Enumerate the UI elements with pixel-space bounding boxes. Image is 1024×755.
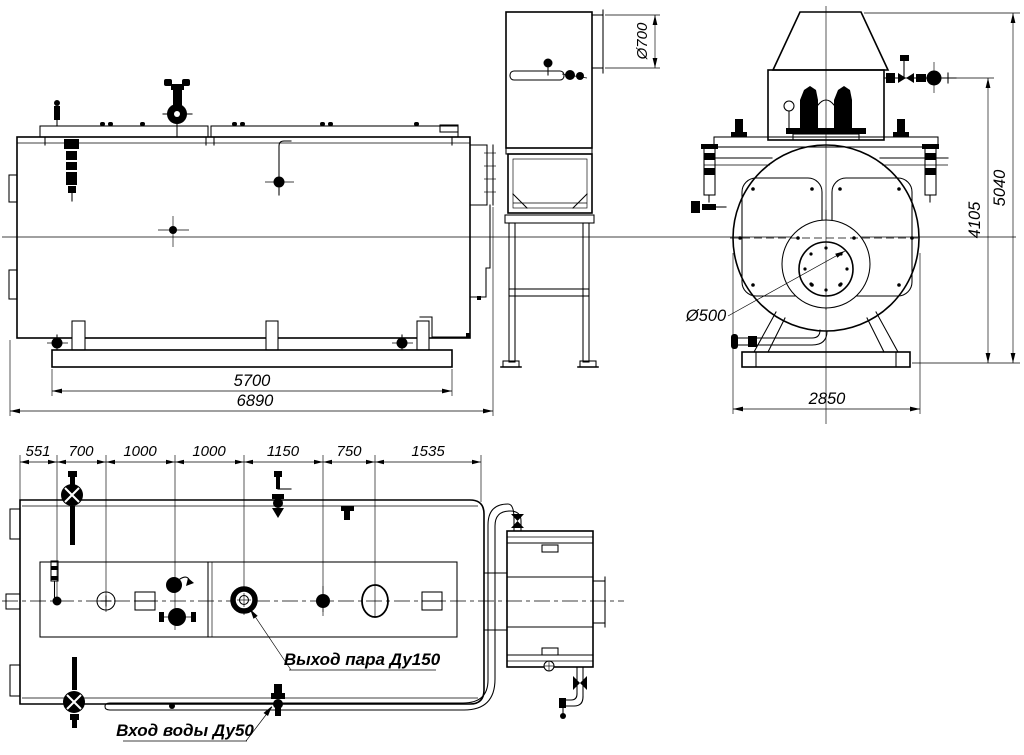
dim-chain-1000b: 1000 <box>192 443 226 460</box>
dim-chain-1000a: 1000 <box>123 443 157 460</box>
economizer-plan <box>507 531 605 719</box>
blowdown-pipe <box>731 330 827 349</box>
hood <box>773 12 888 70</box>
boiler-plan-view: 551 700 1000 1000 1150 750 1535 Выход па… <box>6 443 605 741</box>
safety-valve-group <box>784 86 866 140</box>
dimension-outlet-diameter: Ø700 <box>605 15 660 68</box>
dim-chain-1535: 1535 <box>411 443 445 460</box>
plan-top-valves <box>61 471 354 545</box>
steam-outlet-nozzle <box>233 589 255 611</box>
boiler-front-view: Ø500 4105 5040 2850 <box>685 12 1020 414</box>
dim-chain-750: 750 <box>336 443 362 460</box>
dimension-height-to-valve: 4105 <box>912 78 1020 363</box>
dim-height-to-valve: 4105 <box>966 201 984 239</box>
dim-height-overall: 5040 <box>991 169 1009 207</box>
dimension-height-overall: 5040 <box>864 13 1020 363</box>
economizer-stack-view: Ø700 <box>501 10 660 367</box>
platform-bolts <box>100 122 419 126</box>
dim-burner-diameter: Ø500 <box>685 307 727 325</box>
dim-chain-1150: 1150 <box>267 443 300 460</box>
level-gauge <box>64 139 79 201</box>
feed-water-pipe <box>105 504 524 710</box>
base-frame <box>52 350 452 367</box>
dimension-chain: 551 700 1000 1000 1150 750 1535 <box>20 443 481 464</box>
flue-outlet <box>592 10 603 73</box>
stack-support-frame <box>501 215 598 367</box>
dim-overall-length: 6890 <box>237 392 275 410</box>
damper <box>510 59 587 81</box>
right-side-fittings <box>880 119 948 202</box>
side-valve-assembly <box>884 55 956 93</box>
plan-centerline-fittings <box>51 561 442 626</box>
water-inlet-valve <box>271 684 285 716</box>
dim-chain-551: 551 <box>25 443 50 460</box>
steam-outlet-callout: Выход пара Ду150 <box>250 609 441 670</box>
boiler-side-view: 5700 6890 <box>9 79 496 416</box>
economizer-box <box>508 154 592 213</box>
left-side-fittings <box>691 119 772 213</box>
safety-valve-side <box>163 79 192 137</box>
dim-base-length: 5700 <box>234 372 272 390</box>
water-inlet-callout: Вход воды Ду50 <box>116 706 272 741</box>
down-pipe-valve <box>265 141 294 195</box>
steam-outlet-label: Выход пара Ду150 <box>284 650 441 669</box>
plan-bottom-valve <box>63 657 85 728</box>
dim-chain-700: 700 <box>68 443 94 460</box>
vent-handle <box>54 100 60 126</box>
center-mark <box>158 216 189 247</box>
rear-smokebox-steps <box>420 145 496 337</box>
water-inlet-label: Вход воды Ду50 <box>116 721 254 740</box>
dim-outlet-diameter: Ø700 <box>634 22 651 60</box>
technical-drawing-canvas: 5700 6890 <box>0 0 1024 755</box>
dim-width-overall: 2850 <box>808 390 847 408</box>
support-saddles <box>72 321 429 350</box>
